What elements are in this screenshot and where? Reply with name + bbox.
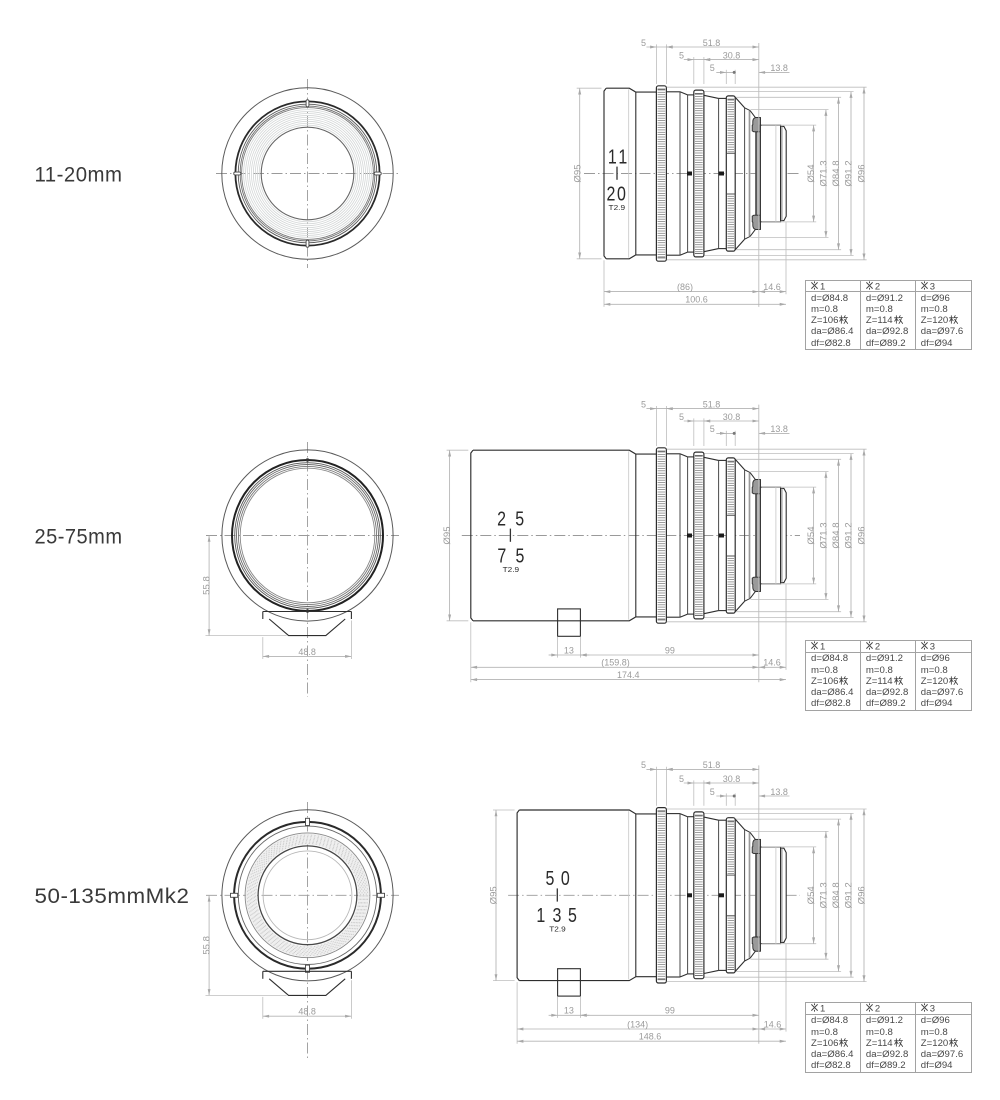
svg-text:13: 13	[564, 645, 574, 655]
svg-text:13.8: 13.8	[770, 787, 788, 797]
svg-text:148.6: 148.6	[639, 1032, 662, 1042]
svg-text:Ø54: Ø54	[806, 526, 817, 545]
svg-text:0: 0	[617, 181, 626, 204]
svg-text:51.8: 51.8	[703, 399, 721, 409]
svg-text:2: 2	[606, 181, 615, 204]
svg-text:51.8: 51.8	[703, 38, 721, 48]
svg-text:2: 2	[497, 506, 506, 529]
svg-text:Ø71.3: Ø71.3	[819, 160, 830, 186]
svg-text:Ø95: Ø95	[572, 164, 583, 182]
svg-text:5: 5	[641, 38, 646, 48]
svg-text:5: 5	[679, 412, 684, 422]
svg-text:55.8: 55.8	[202, 576, 213, 595]
svg-text:30.8: 30.8	[723, 774, 741, 784]
svg-text:Ø91.2: Ø91.2	[844, 522, 855, 548]
svg-text:5: 5	[568, 903, 577, 926]
svg-text:5: 5	[641, 399, 646, 409]
svg-text:100.6: 100.6	[685, 295, 708, 305]
svg-text:Ø96: Ø96	[857, 164, 868, 182]
svg-text:1: 1	[618, 144, 627, 167]
svg-text:13.8: 13.8	[770, 63, 788, 73]
svg-text:5: 5	[710, 63, 715, 73]
svg-text:5: 5	[546, 866, 555, 889]
svg-text:5: 5	[710, 424, 715, 434]
svg-text:5: 5	[641, 760, 646, 770]
svg-text:Ø96: Ø96	[857, 526, 868, 544]
svg-text:5: 5	[515, 506, 524, 529]
svg-text:1: 1	[536, 903, 545, 926]
svg-text:Ø84.8: Ø84.8	[831, 522, 842, 548]
svg-text:5: 5	[679, 50, 684, 60]
svg-text:11-20mm: 11-20mm	[35, 164, 123, 187]
svg-text:Ø95: Ø95	[489, 886, 500, 904]
svg-text:T2.9: T2.9	[549, 925, 566, 934]
svg-text:Ø71.3: Ø71.3	[819, 882, 830, 908]
svg-text:3: 3	[552, 903, 561, 926]
svg-text:99: 99	[665, 645, 675, 655]
svg-text:55.8: 55.8	[202, 936, 213, 955]
svg-text:30.8: 30.8	[723, 50, 741, 60]
svg-text:Ø84.8: Ø84.8	[831, 160, 842, 186]
svg-text:25-75mm: 25-75mm	[35, 526, 123, 549]
svg-text:51.8: 51.8	[703, 760, 721, 770]
svg-text:1: 1	[608, 144, 617, 167]
svg-text:50-135mmMk2: 50-135mmMk2	[35, 885, 190, 908]
svg-text:7: 7	[497, 543, 506, 566]
svg-text:(86): (86)	[677, 282, 693, 292]
svg-text:174.4: 174.4	[617, 670, 640, 680]
svg-text:48.8: 48.8	[298, 647, 316, 657]
svg-text:T2.9: T2.9	[503, 565, 520, 574]
svg-text:48.8: 48.8	[298, 1007, 316, 1017]
svg-text:0: 0	[561, 866, 570, 889]
svg-text:Ø71.3: Ø71.3	[819, 522, 830, 548]
svg-text:14.6: 14.6	[763, 282, 781, 292]
svg-text:Ø96: Ø96	[857, 886, 868, 904]
svg-text:13: 13	[564, 1006, 574, 1016]
svg-text:99: 99	[665, 1006, 675, 1016]
svg-text:Ø54: Ø54	[806, 886, 817, 905]
svg-text:5: 5	[710, 787, 715, 797]
svg-text:5: 5	[515, 543, 524, 566]
svg-text:13.8: 13.8	[770, 424, 788, 434]
svg-text:Ø91.2: Ø91.2	[844, 160, 855, 186]
svg-text:Ø95: Ø95	[442, 526, 453, 544]
svg-text:T2.9: T2.9	[609, 203, 626, 212]
svg-text:30.8: 30.8	[723, 412, 741, 422]
svg-text:Ø54: Ø54	[806, 164, 817, 183]
svg-text:Ø84.8: Ø84.8	[831, 882, 842, 908]
svg-text:14.6: 14.6	[764, 1019, 782, 1029]
svg-text:5: 5	[679, 774, 684, 784]
svg-text:(134): (134)	[627, 1019, 648, 1029]
svg-text:14.6: 14.6	[763, 658, 781, 668]
svg-text:Ø91.2: Ø91.2	[844, 882, 855, 908]
svg-text:(159.8): (159.8)	[601, 658, 630, 668]
